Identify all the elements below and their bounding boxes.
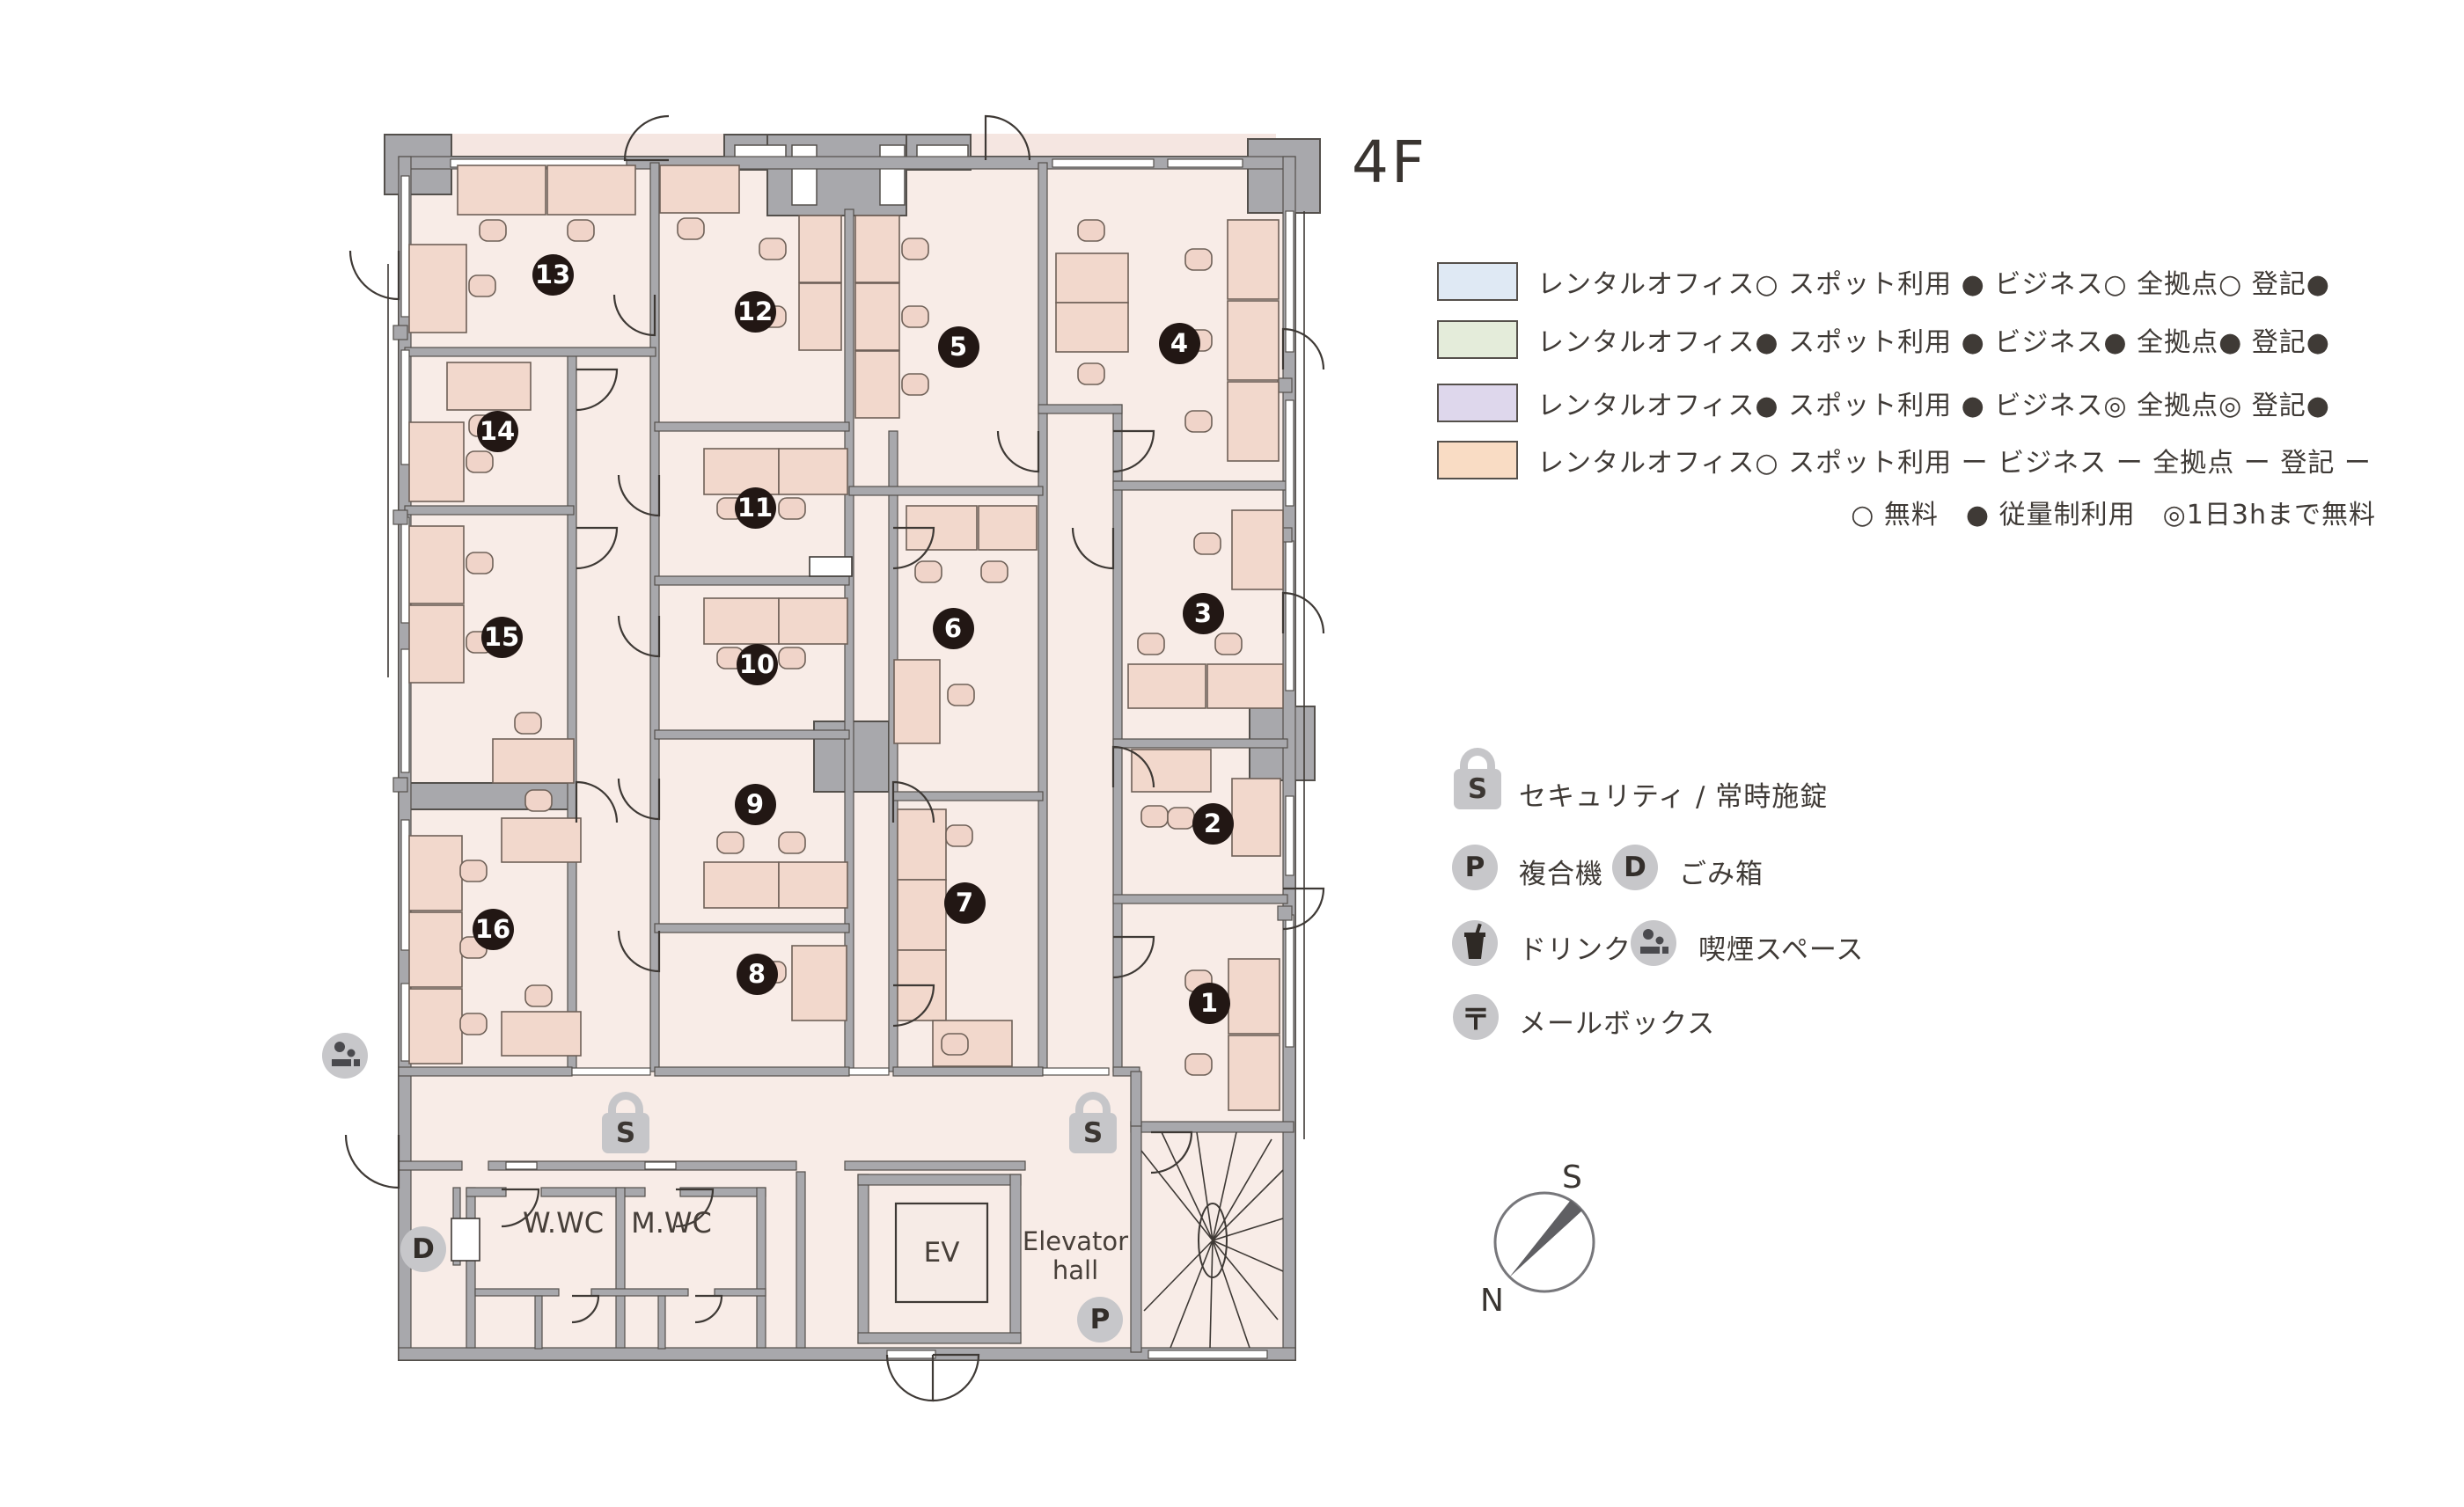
legend-swatch-green bbox=[1437, 320, 1518, 359]
legend-note: ○ 無料 ● 従量制利用 ◎1日3hまで無料 bbox=[1851, 493, 2376, 531]
copier-icon: P bbox=[1452, 845, 1498, 890]
legend-row-text: レンタルオフィス● スポット利用 ● ビジネス● 全拠点● 登記● bbox=[1537, 320, 2330, 359]
legend-swatch-blue bbox=[1437, 262, 1518, 301]
elevator-hall-label: Elevator hall bbox=[1009, 1227, 1141, 1285]
mens-wc-label: M.WC bbox=[631, 1206, 712, 1240]
mailbox-label: メールボックス bbox=[1519, 1001, 1715, 1041]
floorplan-drawing bbox=[0, 0, 2464, 1507]
copier-icon: P bbox=[1077, 1297, 1123, 1342]
room-badge-6: 6 bbox=[933, 608, 974, 649]
room-badge-4: 4 bbox=[1159, 323, 1200, 364]
compass-dial bbox=[1487, 1186, 1603, 1302]
security-lock-icon: S bbox=[602, 1113, 649, 1153]
drink-label: ドリンク bbox=[1519, 927, 1632, 967]
room-badge-9: 9 bbox=[735, 784, 776, 825]
legend-row: レンタルオフィス● スポット利用 ● ビジネス◎ 全拠点◎ 登記● bbox=[1437, 384, 2330, 422]
legend-row-text: レンタルオフィス● スポット利用 ● ビジネス◎ 全拠点◎ 登記● bbox=[1537, 384, 2330, 422]
smoking-label: 喫煙スペース bbox=[1698, 927, 1864, 967]
room-badge-11: 11 bbox=[735, 487, 776, 529]
room-badge-2: 2 bbox=[1192, 803, 1234, 845]
trash-icon: D bbox=[400, 1226, 446, 1272]
room-badge-8: 8 bbox=[737, 954, 778, 995]
legend-swatch-orange bbox=[1437, 441, 1518, 479]
legend-row-text: レンタルオフィス○ スポット利用 ● ビジネス○ 全拠点○ 登記● bbox=[1537, 262, 2330, 301]
compass-south-label: S bbox=[1562, 1160, 1582, 1196]
mailbox-icon: 〒 bbox=[1453, 994, 1499, 1040]
room-badge-5: 5 bbox=[938, 326, 979, 368]
room-badge-7: 7 bbox=[944, 882, 986, 924]
legend-swatch-purple bbox=[1437, 384, 1518, 422]
legend-row-text: レンタルオフィス○ スポット利用 ー ビジネス ー 全拠点 ー 登記 ー bbox=[1537, 441, 2372, 479]
floor-title: 4F bbox=[1352, 128, 1427, 196]
security-lock-icon: S bbox=[1069, 1113, 1117, 1153]
room-badge-15: 15 bbox=[481, 617, 523, 658]
trash-label: ごみ箱 bbox=[1679, 852, 1764, 891]
room-badge-14: 14 bbox=[477, 411, 518, 452]
legend-row: レンタルオフィス○ スポット利用 ● ビジネス○ 全拠点○ 登記● bbox=[1437, 262, 2330, 301]
room-badge-3: 3 bbox=[1183, 593, 1224, 634]
room-badge-12: 12 bbox=[735, 291, 776, 333]
elevator-label: EV bbox=[924, 1237, 960, 1269]
floorplan-page: 4F 12345678910111213141516 W.WC M.WC EV … bbox=[0, 0, 2464, 1507]
trash-icon: D bbox=[1612, 845, 1658, 890]
copier-label: 複合機 bbox=[1519, 852, 1603, 891]
room-badge-13: 13 bbox=[532, 254, 574, 296]
smoking-area-icon bbox=[322, 1033, 368, 1079]
room-badge-16: 16 bbox=[473, 909, 514, 950]
legend-row: レンタルオフィス● スポット利用 ● ビジネス● 全拠点● 登記● bbox=[1437, 320, 2330, 359]
drink-icon bbox=[1452, 920, 1498, 966]
compass-north-label: N bbox=[1480, 1283, 1504, 1319]
room-badge-10: 10 bbox=[737, 644, 778, 685]
security-label: セキュリティ / 常時施錠 bbox=[1519, 774, 1828, 814]
security-lock-icon: S bbox=[1454, 769, 1501, 809]
room-badge-1: 1 bbox=[1189, 983, 1230, 1024]
legend-row: レンタルオフィス○ スポット利用 ー ビジネス ー 全拠点 ー 登記 ー bbox=[1437, 441, 2372, 479]
smoking-area-icon bbox=[1631, 920, 1676, 966]
womens-wc-label: W.WC bbox=[523, 1206, 604, 1240]
